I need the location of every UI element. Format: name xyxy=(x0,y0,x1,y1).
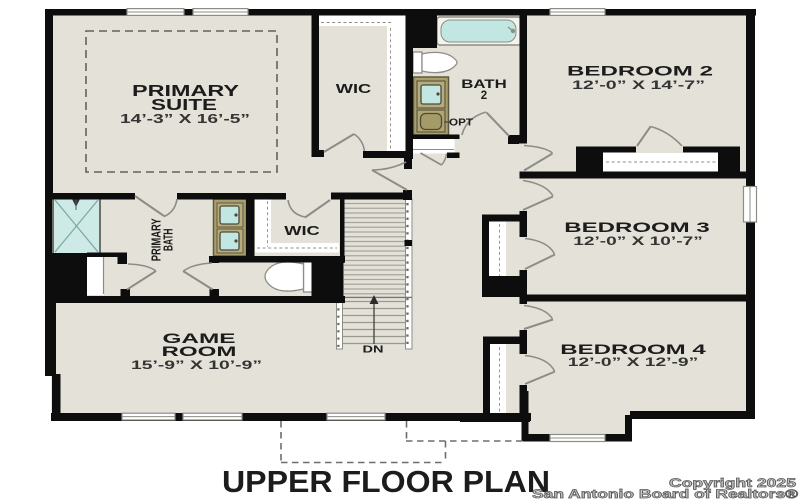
svg-text:12’-0” X 12’-9”: 12’-0” X 12’-9” xyxy=(568,355,699,369)
svg-text:BATH: BATH xyxy=(161,229,175,252)
svg-text:15’-9” X 10’-9”: 15’-9” X 10’-9” xyxy=(131,358,262,372)
svg-text:12’-0” X 14’-7”: 12’-0” X 14’-7” xyxy=(572,78,705,92)
svg-text:WIC: WIC xyxy=(336,82,371,96)
svg-text:San Antonio Board of Realtors®: San Antonio Board of Realtors® xyxy=(532,487,798,500)
svg-text:DN: DN xyxy=(363,345,384,356)
svg-text:12’-0” X 10’-7”: 12’-0” X 10’-7” xyxy=(573,234,703,248)
svg-text:BEDROOM 2: BEDROOM 2 xyxy=(567,63,713,79)
svg-text:UPPER FLOOR PLAN: UPPER FLOOR PLAN xyxy=(222,464,550,499)
svg-text:ROOM: ROOM xyxy=(162,343,237,359)
svg-text:14’-3” X 16’-5”: 14’-3” X 16’-5” xyxy=(120,111,250,126)
svg-text:WIC: WIC xyxy=(284,224,320,238)
svg-text:2: 2 xyxy=(481,90,487,102)
svg-text:OPT: OPT xyxy=(449,117,474,129)
svg-text:BEDROOM 3: BEDROOM 3 xyxy=(564,219,710,235)
